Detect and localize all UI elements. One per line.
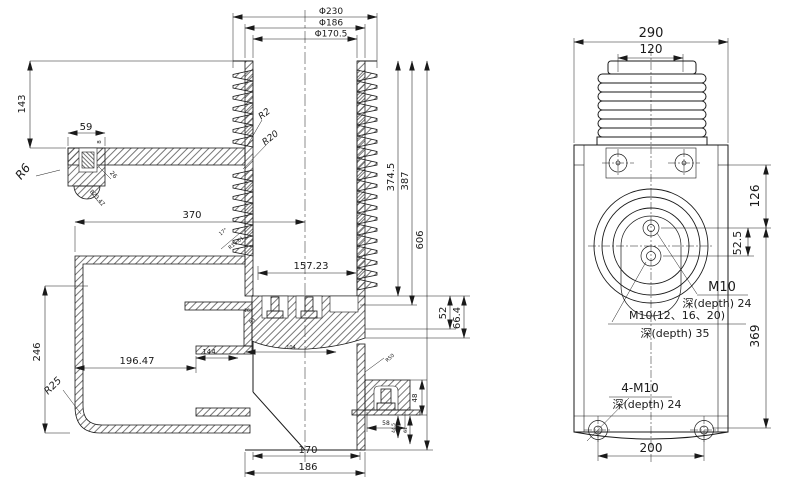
cad-canvas: Φ230 Φ186 Φ170.5 143 59 8 R6 R23.47 26 R… (0, 0, 786, 488)
drawing-page: Φ230 Φ186 Φ170.5 143 59 8 R6 R23.47 26 R… (0, 0, 786, 488)
callout-m10: M10 (708, 280, 736, 295)
dim-170: 170 (298, 445, 317, 456)
dim-dia170-5: Φ170.5 (315, 30, 348, 40)
dim-200: 200 (640, 441, 663, 455)
radius-r6: R6 (12, 161, 33, 182)
flange-stud-head (301, 311, 317, 318)
right-dimension-labels: 290 120 126 52.5 369 M10 深(depth) 24 M10… (612, 26, 762, 455)
flange-pocket (330, 296, 358, 312)
inner-tube-strip (196, 408, 250, 416)
bell-cavity-wall (75, 256, 250, 433)
dim-144: 144 (202, 348, 216, 356)
dim-16: 16 (244, 308, 250, 314)
flange-stud (305, 297, 313, 311)
dim-369: 369 (748, 325, 762, 348)
left-section-view: Φ230 Φ186 Φ170.5 143 59 8 R6 R23.47 26 R… (12, 7, 470, 477)
callout-m10-multi-depth: 深(depth) 35 (640, 327, 709, 340)
radius-r2: R2 (257, 107, 273, 122)
foot-bolt-stem (381, 389, 391, 403)
foot-baseplate (352, 410, 420, 415)
dim-dia186: Φ186 (319, 19, 344, 29)
leader-r50 (365, 358, 384, 372)
dim-44-5: 44.5 (391, 423, 397, 433)
dim-290: 290 (639, 26, 664, 41)
dim-52: 52 (438, 307, 449, 320)
right-front-view: 290 120 126 52.5 369 M10 深(depth) 24 M10… (574, 26, 771, 464)
radius-r20: R20 (261, 129, 281, 148)
callout-4-m10-depth: 深(depth) 24 (612, 398, 681, 411)
dim-58: 58 (382, 420, 390, 427)
dim-66-4: 66.4 (452, 307, 463, 329)
flange-stud-head (267, 311, 283, 318)
radius-r25: R25 (42, 375, 64, 397)
left-hatched-parts (68, 61, 420, 450)
callout-4-m10: 4-M10 (621, 381, 659, 395)
radius-r50: R50 (385, 353, 396, 364)
dim-dia230: Φ230 (319, 7, 344, 17)
dim-157-23: 157.23 (294, 261, 329, 272)
cone-line (253, 392, 305, 450)
bellows (598, 74, 706, 137)
dim-387: 387 (400, 171, 411, 190)
foot-bolt-head (377, 403, 395, 410)
dim-196-47: 196.47 (120, 356, 155, 367)
callout-m10-multi: M10(12、16、20) (629, 309, 725, 322)
dim-606: 606 (415, 230, 426, 249)
dim-61: 61 (403, 427, 409, 433)
flange-stud (271, 297, 279, 311)
angle-17: 17° (218, 227, 229, 237)
seal-insert (82, 152, 94, 168)
lower-wall-right (357, 344, 365, 450)
dim-120: 120 (640, 42, 663, 56)
inner-tube-strip (185, 302, 252, 310)
dim-8: 8 (97, 140, 103, 144)
dim-143: 143 (17, 94, 28, 113)
dim-104: 104 (286, 345, 296, 351)
leader-r6 (36, 170, 60, 176)
inner-tube-connector (244, 310, 252, 346)
dim-48: 48 (411, 394, 419, 403)
dim-246: 246 (32, 342, 43, 361)
dim-52-5: 52.5 (731, 231, 744, 256)
dim-374-5: 374.5 (386, 163, 397, 192)
leader-m10 (657, 233, 697, 294)
dim-186: 186 (298, 462, 317, 473)
dim-126: 126 (748, 185, 762, 208)
dim-26: 26 (108, 170, 118, 180)
dim-59: 59 (80, 122, 93, 133)
dim-370: 370 (182, 210, 201, 221)
bellows-collar (597, 137, 707, 145)
